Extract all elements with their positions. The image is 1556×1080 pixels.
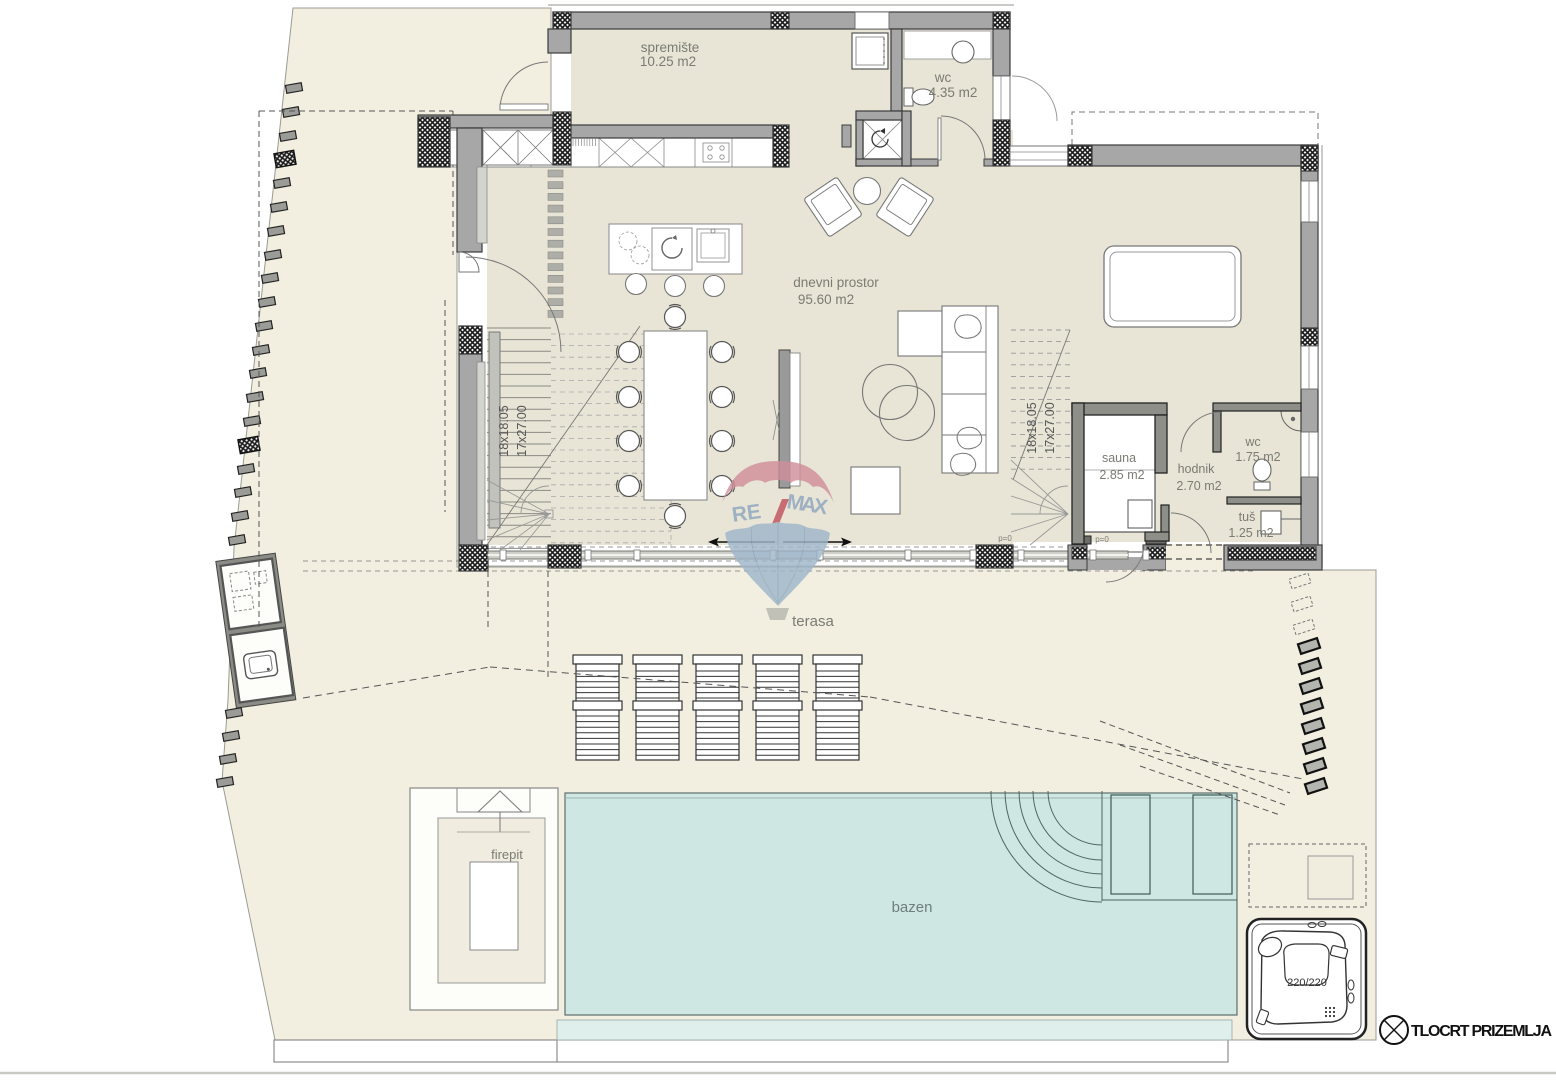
svg-text:spremište: spremište (641, 40, 700, 55)
svg-text:wc: wc (934, 70, 952, 85)
svg-text:dnevni prostor: dnevni prostor (793, 275, 879, 290)
svg-text:p=0: p=0 (1095, 535, 1109, 544)
svg-text:tuš: tuš (1239, 510, 1256, 524)
svg-text:95.60 m2: 95.60 m2 (798, 292, 854, 307)
svg-text:18x18.05: 18x18.05 (1025, 402, 1039, 453)
svg-text:bazen: bazen (892, 899, 933, 916)
svg-text:17x27.00: 17x27.00 (515, 405, 529, 456)
svg-text:TLOCRT PRIZEMLJA: TLOCRT PRIZEMLJA (1411, 1023, 1552, 1040)
svg-text:1.25 m2: 1.25 m2 (1228, 526, 1273, 540)
svg-text:sauna: sauna (1102, 451, 1136, 465)
svg-text:p=0: p=0 (998, 534, 1012, 543)
svg-text:4.35 m2: 4.35 m2 (929, 85, 978, 100)
svg-text:firepit: firepit (491, 847, 523, 862)
svg-text:2.85 m2: 2.85 m2 (1099, 468, 1144, 482)
svg-text:terasa: terasa (792, 613, 834, 630)
svg-text:hodnik: hodnik (1178, 462, 1216, 476)
svg-text:17x27.00: 17x27.00 (1043, 402, 1057, 453)
svg-text:wc: wc (1244, 435, 1260, 449)
svg-text:1.75 m2: 1.75 m2 (1235, 450, 1280, 464)
svg-text:18x18.05: 18x18.05 (497, 405, 511, 456)
svg-text:10.25 m2: 10.25 m2 (640, 54, 696, 69)
svg-text:RE: RE (730, 500, 762, 527)
svg-text:220/220: 220/220 (1287, 977, 1327, 989)
svg-text:2.70 m2: 2.70 m2 (1176, 479, 1221, 493)
